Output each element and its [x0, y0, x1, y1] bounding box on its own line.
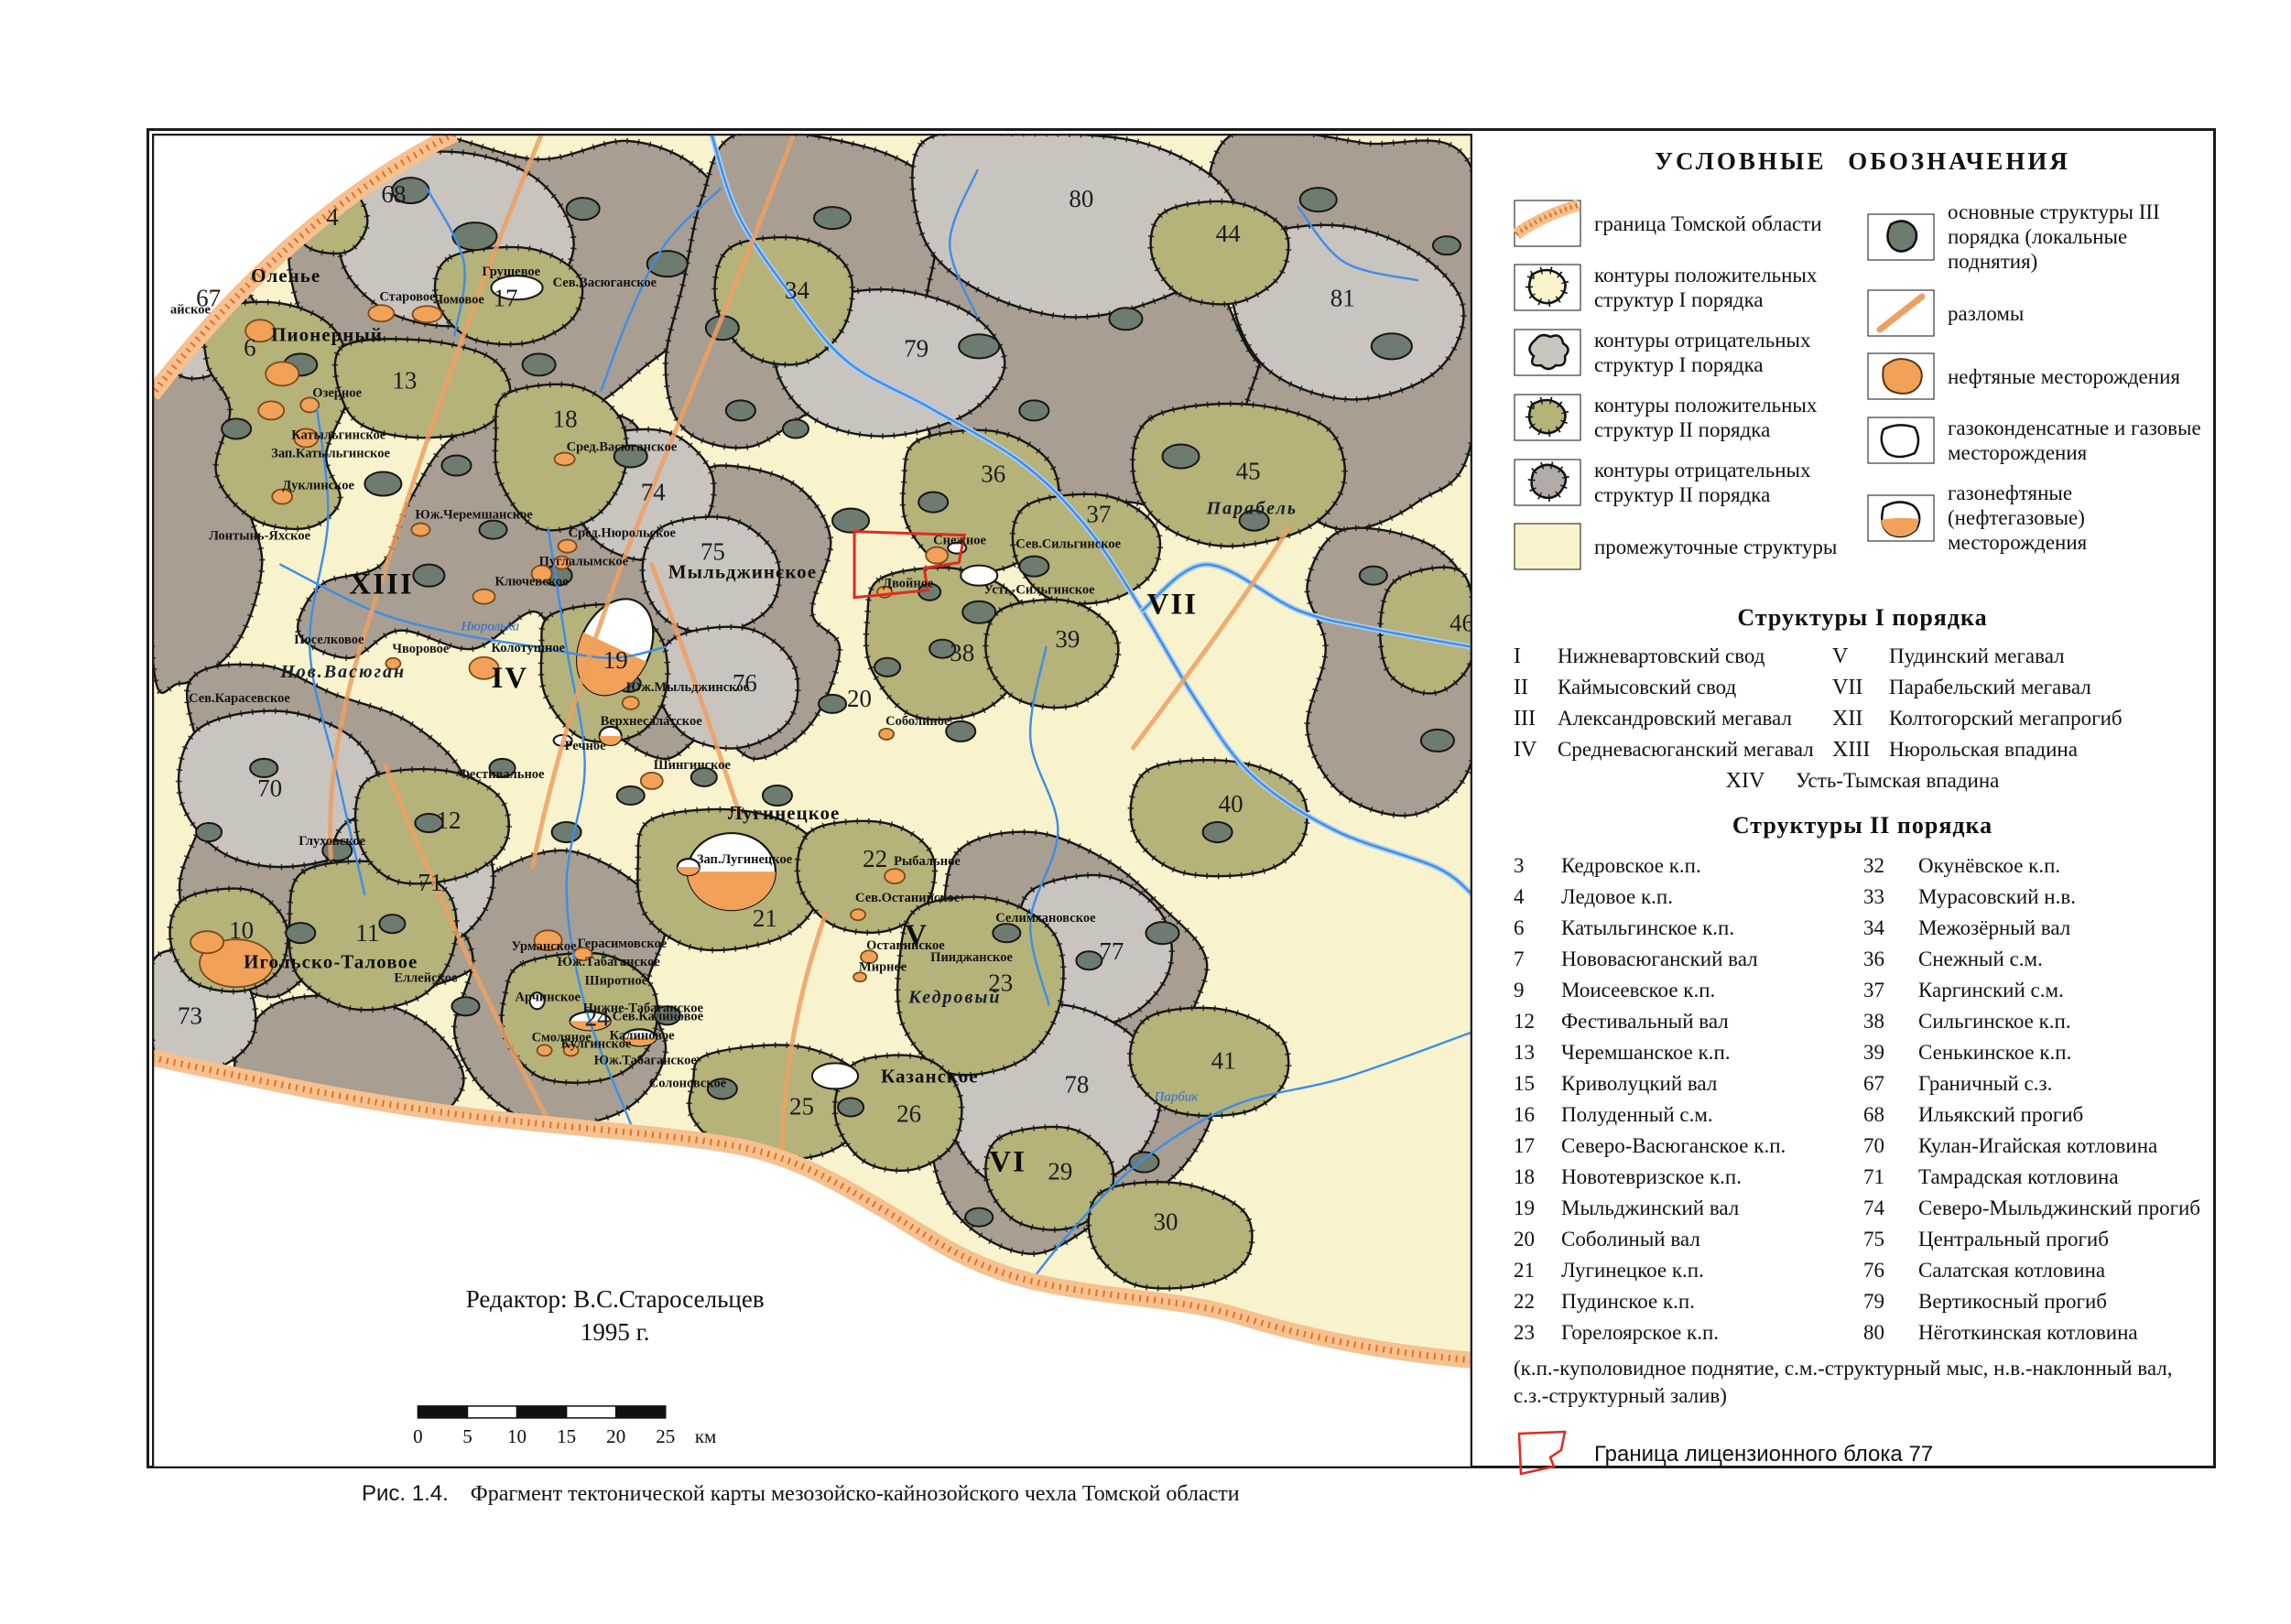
structure-name: Нововасюганский вал: [1561, 946, 1863, 972]
map-place-label: Зап.Лугинецкое: [697, 852, 793, 867]
structure-numeral: 12: [1514, 1008, 1561, 1034]
local-uplift-icon: [1867, 213, 1935, 261]
map-place-label: Лонтынь-Яхское: [209, 529, 310, 544]
map-structure-number: VI: [989, 1146, 1026, 1179]
scale-tick-label: 15: [557, 1425, 576, 1447]
oblast-border-icon: [1514, 200, 1581, 247]
legend-item-label: контуры положительных структур I порядка: [1594, 263, 1854, 312]
map-place-label: Лугинецкое: [728, 802, 841, 824]
structure-name: Салатская котловина: [1918, 1257, 2211, 1283]
map-place-label: Зап.Катыльгинское: [271, 446, 390, 460]
structure-numeral: 75: [1863, 1226, 1918, 1252]
legend-item-negative-2: контуры отрицательных структур II порядк…: [1514, 458, 1854, 507]
oil-gas-field-icon: [1867, 494, 1935, 542]
map-structure-number: 40: [1219, 790, 1243, 817]
map-structure-number: 39: [1055, 625, 1080, 653]
map-structure-number: 25: [789, 1092, 814, 1120]
license-block-icon: [1514, 1426, 1581, 1483]
structure-numeral: VII: [1832, 676, 1889, 700]
structure-numeral: 19: [1514, 1195, 1561, 1221]
map-structure-number: 20: [847, 685, 872, 712]
structure-name: Фестивальный вал: [1561, 1008, 1863, 1034]
structure-name: Нёготкинская котловина: [1918, 1319, 2211, 1346]
abbreviations-note: (к.п.-куполовидное поднятие, с.м.-структ…: [1514, 1355, 2211, 1410]
structure-numeral: 80: [1863, 1319, 1918, 1346]
structure-name: Вертикосный прогиб: [1918, 1288, 2211, 1315]
negative-structure-1-icon: [1514, 329, 1581, 376]
legend-title: УСЛОВНЫЕ ОБОЗНАЧЕНИЯ: [1514, 147, 2211, 176]
map-place-label: Юж.Табаганское: [558, 955, 661, 969]
map-place-label: Глуховское: [299, 834, 365, 849]
structure-name: Каймысовский свод: [1558, 676, 1832, 700]
structure-name: Кедровское к.п.: [1561, 852, 1863, 879]
map-place-label: Мыльджинское: [668, 561, 817, 583]
map-structure-number: 11: [355, 919, 379, 947]
structure-name: Тамрадская котловина: [1918, 1164, 2211, 1190]
structure-name: Горелоярское к.п.: [1561, 1319, 1863, 1346]
legend-item-oil: нефтяные месторождения: [1867, 352, 2211, 400]
map-place-label: Рыбальное: [894, 854, 961, 869]
structure-name: Северо-Мыльджинский прогиб: [1918, 1195, 2211, 1221]
legend-item-label: граница Томской области: [1594, 211, 1822, 236]
structure-name: Центральный прогиб: [1918, 1226, 2211, 1252]
map-place-label: Селимхановское: [995, 911, 1096, 926]
structure-numeral: 17: [1514, 1132, 1561, 1159]
map-structure-number: 6: [244, 333, 256, 361]
structure-numeral: 4: [1514, 883, 1561, 910]
structures-1-title: Структуры I порядка: [1514, 604, 2211, 632]
structure-numeral: II: [1514, 676, 1558, 700]
map-structure-number: 44: [1216, 220, 1242, 247]
map-place-label: Сев.Карасевское: [189, 691, 290, 706]
scale-tick-label: 10: [507, 1425, 527, 1447]
map-place-label: Нюролька: [460, 620, 519, 634]
map-structure-number: 37: [1086, 501, 1111, 528]
map-place-label: Юж.Мыльджинское: [626, 680, 750, 695]
intermediate-structures-icon: [1514, 523, 1581, 570]
map-structure-number: 10: [229, 916, 254, 944]
license-block-label: Граница лицензионного блока 77: [1594, 1442, 1933, 1467]
map-place-label: Поселковое: [294, 633, 364, 647]
structure-name: Ледовое к.п.: [1561, 883, 1863, 910]
structure-numeral: 33: [1863, 883, 1918, 910]
map-structure-number: 29: [1048, 1158, 1072, 1186]
structure-name: Северо-Васюганское к.п.: [1561, 1132, 1863, 1159]
map-structure-number: 30: [1154, 1208, 1178, 1236]
map-place-label: Ключевское: [495, 575, 570, 590]
structure-name: Мурасовский н.в.: [1918, 883, 2211, 910]
legend-item-faults: разломы: [1867, 289, 2211, 337]
structure-name: Александровский мегавал: [1558, 707, 1832, 731]
structure-name: Сильгинское к.п.: [1918, 1008, 2211, 1034]
map-place-label: Игольско-Таловое: [244, 950, 418, 972]
structure-name: Парабельский мегавал: [1889, 676, 2191, 700]
map-place-label: Герасимовское: [578, 937, 668, 951]
legend-panel: УСЛОВНЫЕ ОБОЗНАЧЕНИЯ граница Томской обл…: [1514, 142, 2211, 1483]
legend-item-label: газоконденсатные и газовые месторождения: [1948, 416, 2211, 465]
positive-structure-2-icon: [1514, 394, 1581, 441]
map-structure-number: 77: [1099, 937, 1124, 965]
map-place-label: Катыльгинское: [291, 428, 386, 442]
tectonic-map: 6848044817967613173418747576363745463839…: [152, 134, 1472, 1468]
structure-numeral: 36: [1863, 946, 1918, 972]
map-structure-number: 70: [257, 774, 282, 802]
map-place-label: Солоновское: [649, 1076, 727, 1090]
map-place-label: Сев.Васюганское: [553, 276, 657, 290]
map-place-label: Кедровый: [907, 987, 1001, 1007]
map-place-label: Сев.Останинское: [855, 891, 961, 905]
oil-gas-field: [688, 833, 776, 910]
fault-icon: [1867, 289, 1935, 337]
structure-numeral: 23: [1514, 1319, 1561, 1346]
map-place-label: Парабель: [1206, 499, 1298, 519]
map-structure-number: 74: [641, 479, 667, 506]
map-place-label: Двойное: [883, 577, 934, 591]
structure-numeral: 68: [1863, 1101, 1918, 1128]
map-place-label: Чворовое: [392, 642, 450, 656]
structure-numeral: 15: [1514, 1070, 1561, 1097]
map-place-label: Грушевое: [483, 265, 541, 279]
structure-name: Катыльгинское к.п.: [1561, 915, 1863, 941]
legend-item-label: нефтяные месторождения: [1948, 364, 2180, 389]
structures-1-list: IНижневартовский сводVПудинский мегавалI…: [1514, 644, 2211, 763]
legend-item-label: промежуточные структуры: [1594, 535, 1837, 559]
map-structure-number: 12: [436, 807, 461, 834]
structure-numeral: XIV: [1726, 769, 1765, 793]
structure-numeral: I: [1514, 644, 1558, 669]
map-structure-number: 38: [950, 639, 974, 666]
scale-tick-label: 25: [656, 1425, 675, 1447]
structure-name: Моисеевское к.п.: [1561, 977, 1863, 1003]
map-place-label: Урманское: [512, 939, 578, 954]
license-block-item: Граница лицензионного блока 77: [1514, 1426, 2211, 1483]
structure-numeral: 39: [1863, 1039, 1918, 1066]
legend-item-oblast-border: граница Томской области: [1514, 200, 1854, 247]
map-place-label: Озерное: [312, 385, 362, 400]
map-place-label: Сред.Нюрольское: [569, 526, 677, 541]
structure-numeral: IV: [1514, 738, 1558, 763]
structure-numeral: 76: [1863, 1257, 1918, 1283]
structure-numeral: 71: [1863, 1164, 1918, 1190]
map-place-label: Юж.Табаганское: [594, 1053, 698, 1067]
structure-numeral: 70: [1863, 1132, 1918, 1159]
negative-structure-2-icon: [1514, 459, 1581, 506]
legend-item-positive-2: контуры положительных структур II порядк…: [1514, 393, 1854, 442]
map-structure-number: 19: [603, 646, 628, 674]
map-place-label: Дуклинское: [282, 479, 354, 493]
map-place-label: Еллейское: [394, 970, 458, 985]
map-structure-number: 80: [1069, 185, 1093, 212]
figure-frame: 6848044817967613173418747576363745463839…: [147, 128, 2216, 1468]
scale-tick-label: 0: [413, 1425, 423, 1447]
editor-year: 1995 г.: [581, 1318, 650, 1346]
map-place-label: Сев.Сильгинское: [1015, 537, 1121, 552]
map-place-label: Останинское: [866, 938, 945, 953]
gas-field-icon: [1867, 417, 1935, 464]
structure-numeral: 16: [1514, 1101, 1561, 1128]
map-structure-number: XIII: [349, 568, 413, 601]
structure-numeral: XII: [1832, 707, 1889, 731]
legend-item-oil-gas: газонефтяные (нефтегазовые) месторождени…: [1867, 481, 2211, 555]
map-place-label: Сред.Васюганское: [567, 439, 678, 454]
positive-structure-1-icon: [1514, 264, 1581, 311]
structure-name: Нюрольская впадина: [1889, 738, 2191, 763]
structure-name: Сенькинское к.п.: [1918, 1039, 2211, 1066]
map-place-label: Смоляное: [532, 1030, 592, 1045]
map-place-label: Нов.Васюган: [279, 662, 406, 682]
structure-numeral: 22: [1514, 1288, 1561, 1315]
structure-name: Окунёвское к.п.: [1918, 852, 2211, 879]
legend-item-positive-1: контуры положительных структур I порядка: [1514, 263, 1854, 312]
legend-symbols-right: основные структуры III порядка (локальны…: [1867, 200, 2211, 586]
structure-numeral: 37: [1863, 977, 1918, 1003]
map-place-label: Колотушное: [492, 641, 566, 655]
structure-name: Межозёрный вал: [1918, 915, 2211, 941]
structure-numeral: 67: [1863, 1070, 1918, 1097]
legend-item-label: контуры положительных структур II порядк…: [1594, 393, 1854, 442]
map-structure-number: 34: [785, 276, 810, 304]
structure-name: Колтогорский мегапрогиб: [1889, 707, 2191, 731]
map-place-label: Шингинское: [654, 758, 732, 773]
map-place-label: айское: [170, 302, 211, 317]
oil-field-icon: [1867, 352, 1935, 400]
structures-2-title: Структуры II порядка: [1514, 812, 2211, 839]
legend-symbols: граница Томской области контуры положите…: [1514, 200, 2211, 586]
map-place-label: Арчинское: [516, 990, 581, 1004]
map-structure-number: 46: [1450, 610, 1472, 637]
structure-name: Средневасюганский мегавал: [1558, 738, 1832, 763]
structure-name: Граничный с.з.: [1918, 1070, 2211, 1097]
map-place-label: Юж.Черемшанское: [415, 508, 533, 523]
structure-numeral: 20: [1514, 1226, 1561, 1252]
structure-numeral: 6: [1514, 915, 1561, 941]
structure-numeral: 34: [1863, 915, 1918, 941]
legend-item-intermediate: промежуточные структуры: [1514, 523, 1854, 570]
editor-line: Редактор: В.С.Старосельцев: [466, 1285, 765, 1313]
map-structure-number: 13: [392, 366, 417, 394]
legend-item-label: газонефтяные (нефтегазовые) месторождени…: [1948, 481, 2211, 555]
legend-symbols-left: граница Томской области контуры положите…: [1514, 200, 1854, 586]
structure-name: Новотевризское к.п.: [1561, 1164, 1863, 1190]
structure-numeral: 13: [1514, 1039, 1561, 1066]
caption-text: Фрагмент тектонической карты мезозойско-…: [471, 1482, 1240, 1506]
structure-name: Ильякский прогиб: [1918, 1101, 2211, 1128]
structure-numeral: 3: [1514, 852, 1561, 879]
map-structure-number: 36: [981, 460, 1005, 488]
map-structure-number: 4: [326, 203, 339, 231]
map-place-label: Сев.Калиновое: [613, 1009, 704, 1023]
figure-page: 6848044817967613173418747576363745463839…: [0, 0, 2291, 1624]
legend-item-negative-1: контуры отрицательных структур I порядка: [1514, 328, 1854, 377]
structure-name: Мыльджинский вал: [1561, 1195, 1863, 1221]
map-place-label: Речное: [565, 739, 607, 753]
map-structure-number: 21: [753, 904, 777, 932]
structure-numeral: 21: [1514, 1257, 1561, 1283]
map-place-label: Парбик: [1154, 1089, 1200, 1104]
map-place-label: Пуглалымское: [539, 555, 629, 569]
structure-numeral: 32: [1863, 852, 1918, 879]
structure-name: Пудинское к.п.: [1561, 1288, 1863, 1315]
legend-item-label: контуры отрицательных структур I порядка: [1594, 328, 1854, 377]
map-structure-number: 78: [1064, 1070, 1089, 1098]
structure-name: Пудинский мегавал: [1889, 644, 2191, 669]
structure-numeral: 38: [1863, 1008, 1918, 1034]
map-place-label: Ломовое: [433, 292, 484, 307]
map-structure-number: 26: [896, 1099, 921, 1127]
map-place-label: Старовое: [379, 289, 436, 304]
structure-numeral: 9: [1514, 977, 1561, 1003]
structures-2-list: 3Кедровское к.п.32Окунёвское к.п.4Ледово…: [1514, 852, 2211, 1346]
legend-item-gas: газоконденсатные и газовые месторождения: [1867, 416, 2211, 465]
map-place-label: Широтное: [585, 973, 648, 988]
legend-item-local-uplift: основные структуры III порядка (локальны…: [1867, 200, 2211, 274]
structure-name: Каргинский с.м.: [1918, 977, 2211, 1003]
structure-numeral: XIII: [1832, 738, 1889, 763]
structures-1-center-entry: XIV Усть-Тымская впадина: [1514, 769, 2211, 794]
tectonic-map-svg: 6848044817967613173418747576363745463839…: [152, 134, 1472, 1468]
map-structure-number: 22: [863, 845, 887, 872]
scale-tick-label: 20: [606, 1425, 625, 1447]
legend-item-label: основные структуры III порядка (локальны…: [1948, 200, 2211, 274]
structure-numeral: 79: [1863, 1288, 1918, 1315]
map-structure-number: 81: [1330, 284, 1355, 311]
structure-numeral: 18: [1514, 1164, 1561, 1190]
structure-name: Нижневартовский свод: [1558, 644, 1832, 669]
structure-name: Кулан-Игайская котловина: [1918, 1132, 2211, 1159]
map-place-label: Оленье: [251, 265, 320, 287]
legend-item-label: контуры отрицательных структур II порядк…: [1594, 458, 1854, 507]
caption-prefix: Рис. 1.4.: [362, 1481, 449, 1506]
structure-name: Черемшанское к.п.: [1561, 1039, 1863, 1066]
map-structure-number: 68: [381, 180, 406, 208]
structure-name: Усть-Тымская впадина: [1796, 769, 1999, 792]
map-structure-number: 41: [1211, 1046, 1236, 1074]
map-structure-number: 18: [553, 405, 578, 432]
structure-name: Соболиный вал: [1561, 1226, 1863, 1252]
figure-caption: Рис. 1.4. Фрагмент тектонической карты м…: [362, 1481, 1240, 1507]
structure-name: Лугинецкое к.п.: [1561, 1257, 1863, 1283]
map-structure-number: 45: [1236, 458, 1261, 485]
map-structure-number: VII: [1147, 589, 1199, 622]
map-place-label: Усть-Сильгинское: [983, 583, 1095, 598]
structure-numeral: III: [1514, 707, 1558, 731]
structure-name: Полуденный с.м.: [1561, 1101, 1863, 1128]
map-place-label: Снежное: [933, 534, 986, 548]
map-structure-number: 79: [904, 334, 928, 362]
map-place-label: Казанское: [881, 1065, 979, 1087]
structure-name: Снежный с.м.: [1918, 946, 2211, 972]
map-place-label: Пионерный: [271, 323, 383, 345]
map-structure-number: 17: [494, 284, 518, 311]
scale-unit: км: [695, 1425, 717, 1447]
legend-item-label: разломы: [1948, 301, 2024, 326]
map-structure-number: IV: [492, 662, 529, 695]
structure-numeral: 74: [1863, 1195, 1918, 1221]
map-structure-number: 71: [418, 869, 442, 896]
structure-numeral: V: [1832, 644, 1889, 669]
map-place-label: Верхнесалатское: [601, 714, 703, 729]
scale-tick-label: 5: [462, 1425, 472, 1447]
structure-name: Криволуцкий вал: [1561, 1070, 1863, 1097]
map-place-label: Фестивальное: [458, 767, 545, 782]
map-structure-number: 73: [178, 1001, 202, 1029]
structure-numeral: 7: [1514, 946, 1561, 972]
map-place-label: Соболиное: [885, 714, 950, 729]
map-place-label: Мирное: [859, 959, 907, 974]
